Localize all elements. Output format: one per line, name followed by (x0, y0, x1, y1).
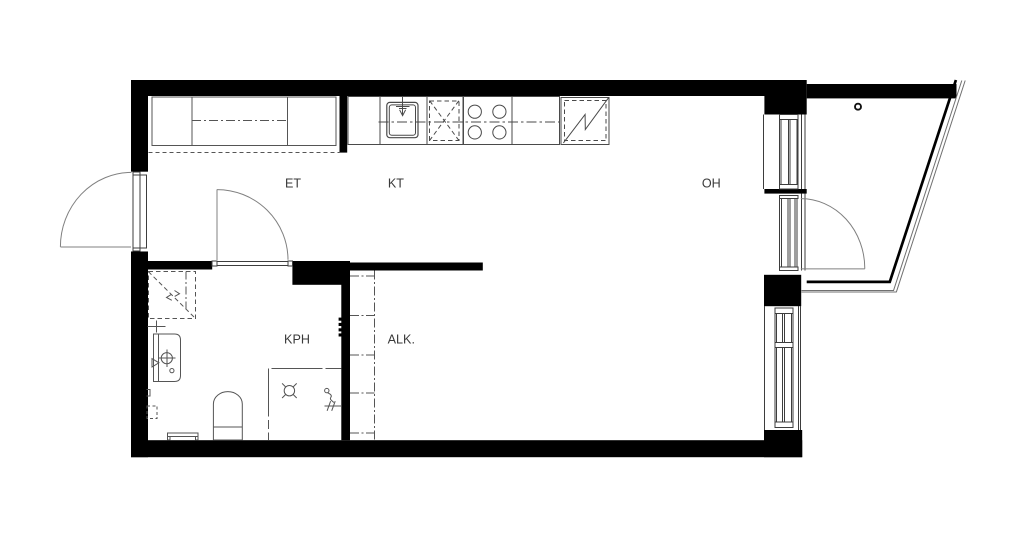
svg-text:OH: OH (702, 177, 721, 191)
svg-text:ET: ET (285, 177, 301, 191)
svg-text:ALK.: ALK. (388, 333, 415, 347)
svg-text:KT: KT (388, 177, 404, 191)
svg-text:KPH: KPH (284, 333, 310, 347)
